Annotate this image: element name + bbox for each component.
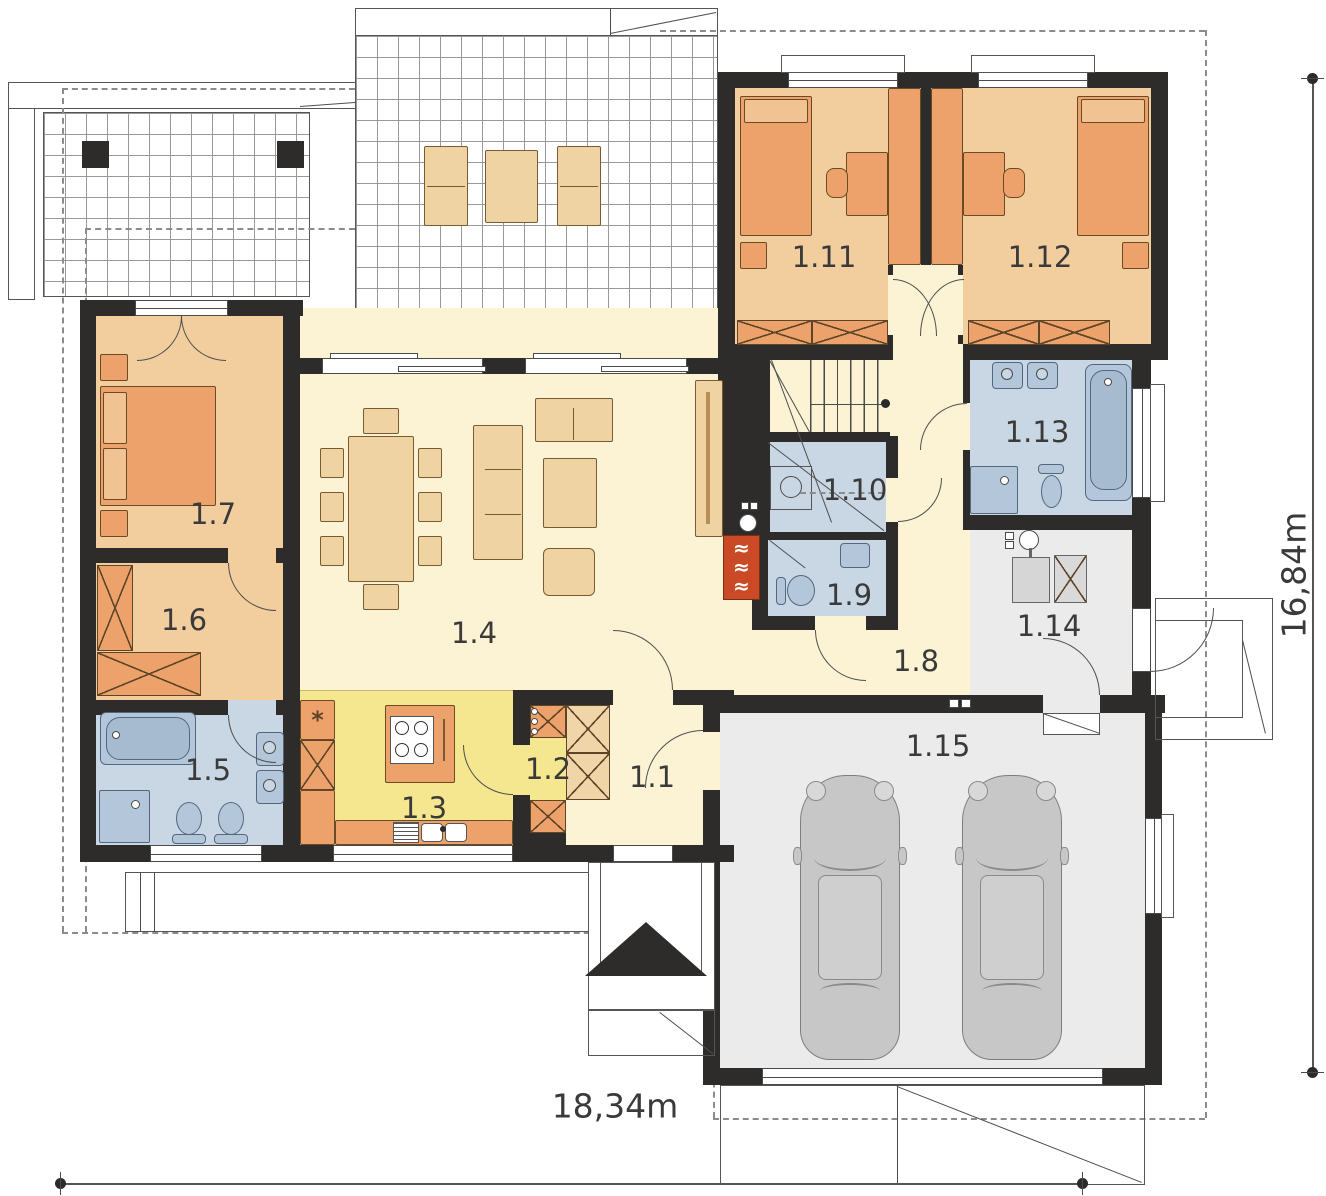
terrace-pillar: [82, 141, 109, 168]
sink-basin: [1001, 368, 1013, 380]
window-bathroom-1-13: [1132, 388, 1151, 498]
water-tank-icon: [1054, 555, 1087, 603]
kitchen-cabinet-icon: [300, 740, 335, 790]
shelf-peg: [531, 708, 538, 715]
stair-rail: [810, 404, 890, 405]
chair-icon: [320, 448, 344, 478]
step-line: [154, 872, 155, 932]
car-headlight: [1036, 781, 1056, 801]
roof-eave-band: [8, 108, 35, 300]
window-bathroom-1-5: [150, 845, 262, 862]
toilet-icon: [176, 802, 202, 835]
door-opening: [703, 732, 720, 790]
room-label-1-11: 1.11: [792, 240, 857, 274]
shelf-peg: [531, 728, 538, 735]
window-french-door-1-7: [135, 300, 228, 316]
closet-icon: [888, 88, 921, 265]
flue-vent: [750, 502, 758, 510]
room-label-1-12: 1.12: [1008, 240, 1073, 274]
wall: [921, 72, 931, 265]
armchair-icon: [543, 548, 595, 596]
overhang-dashed: [1205, 30, 1207, 1118]
wardrobe-icon: [97, 652, 201, 696]
wall: [963, 450, 970, 515]
nightstand-icon: [100, 354, 128, 381]
burner: [414, 743, 428, 757]
door-opening: [228, 700, 276, 715]
car-roof: [818, 875, 882, 980]
wardrobe-icon: [1039, 320, 1110, 345]
sliding-panel: [330, 353, 418, 359]
stairs: [810, 360, 890, 432]
wall: [866, 616, 898, 630]
entrance-door: [613, 845, 673, 862]
chair-icon: [320, 492, 344, 522]
side-door-1-14: [1132, 608, 1151, 672]
bidet-tank: [214, 834, 248, 844]
vent: [961, 699, 971, 708]
closet-icon: [931, 88, 963, 265]
wall: [703, 695, 1043, 713]
wall: [886, 436, 898, 478]
pantry-cabinet-icon: [530, 800, 566, 833]
wardrobe-icon: [97, 565, 133, 651]
room-label-1-3: 1.3: [401, 791, 447, 825]
wall: [963, 344, 1168, 360]
room-label-1-14: 1.14: [1017, 609, 1082, 643]
overhang-dashed: [62, 932, 660, 934]
room-label-1-8: 1.8: [893, 644, 939, 678]
overhang-dashed: [62, 88, 355, 90]
room-label-1-6: 1.6: [161, 603, 207, 637]
flue-vent: [741, 502, 749, 510]
room-label-1-13: 1.13: [1005, 415, 1070, 449]
shower-drain: [1000, 476, 1009, 485]
floor-garage-1-15: [720, 713, 1145, 1068]
overhang-dashed: [62, 88, 64, 932]
wall: [703, 1068, 762, 1085]
wall: [963, 360, 970, 403]
sink-basin: [263, 779, 276, 792]
washing-machine-drum: [780, 476, 802, 498]
room-label-1-9: 1.9: [826, 578, 872, 612]
room-label-1-7: 1.7: [190, 497, 236, 531]
wall: [718, 344, 770, 436]
sink-basin: [1036, 368, 1048, 380]
car-rear-window: [982, 983, 1042, 999]
room-label-1-5: 1.5: [185, 753, 231, 787]
dimension-height-label: 16,84m: [1275, 512, 1314, 639]
wall: [718, 72, 1168, 88]
kitchen-counter: [300, 790, 335, 845]
dimension-tick: [1301, 78, 1324, 79]
sliding-panel: [601, 366, 689, 372]
nightstand-icon: [740, 242, 767, 269]
car-headlight: [806, 781, 826, 801]
nightstand-icon: [100, 510, 128, 537]
room-label-1-2: 1.2: [525, 752, 571, 786]
chair-icon: [1003, 168, 1025, 198]
car-rear-window: [820, 983, 880, 999]
door-opening: [1043, 695, 1100, 713]
shelf-peg: [531, 718, 538, 725]
chair-icon: [418, 448, 442, 478]
sofa-icon: [535, 398, 613, 442]
bed-pillow: [103, 392, 127, 444]
wall: [1151, 72, 1168, 360]
window-sill: [1161, 814, 1174, 918]
sofa-icon: [473, 425, 523, 560]
garage-door-opening: [762, 1068, 1103, 1085]
chair-icon: [363, 584, 399, 610]
wall: [283, 300, 300, 862]
bathtub-inner: [106, 717, 190, 760]
sofa-seam: [427, 186, 465, 187]
faucet: [440, 826, 446, 832]
room-label-1-1: 1.1: [629, 760, 675, 794]
outdoor-table-icon: [485, 150, 538, 223]
hall-wardrobe-icon: [566, 705, 610, 753]
chair-icon: [418, 536, 442, 566]
window-sill: [781, 55, 905, 73]
door-opening: [815, 616, 866, 630]
kitchen-sink-icon: [445, 823, 467, 842]
overhang-dashed: [660, 30, 1205, 32]
car-mirror: [955, 847, 964, 865]
boiler-icon: [1012, 557, 1050, 603]
overhang-dashed: [85, 228, 355, 230]
island-board: [443, 719, 445, 761]
chair-icon: [320, 536, 344, 566]
door-opening: [228, 548, 276, 563]
burner: [395, 721, 409, 735]
flue-vent: [1005, 541, 1014, 549]
toilet-tank: [1038, 464, 1064, 474]
dimension-tick: [1301, 1072, 1324, 1073]
bed-pillow: [103, 448, 127, 500]
wardrobe-icon: [737, 320, 812, 345]
vent: [949, 699, 959, 708]
wall: [752, 532, 886, 540]
side-steps-inner: [1155, 620, 1243, 718]
car-headlight: [968, 781, 988, 801]
burner: [395, 743, 409, 757]
sofa-seam: [573, 408, 574, 440]
chair-icon: [418, 492, 442, 522]
chimney-icon: [1019, 530, 1039, 550]
sofa-seam: [485, 469, 521, 470]
south-terrace-platform: [125, 872, 660, 932]
desk-icon: [963, 152, 1005, 216]
wall: [1145, 914, 1162, 1085]
sofa-seam: [485, 514, 521, 515]
wall: [718, 72, 735, 362]
wall: [963, 515, 1151, 530]
dining-table-icon: [348, 436, 414, 582]
door-opening: [613, 690, 673, 705]
fridge-cabinet: *: [300, 700, 335, 740]
wall: [276, 700, 283, 715]
hall-wardrobe-icon: [566, 753, 610, 800]
bed-pillow: [1081, 99, 1145, 123]
window-bedroom-1-11: [788, 72, 898, 88]
porch-step: [588, 1010, 715, 1056]
cabinet-groove: [706, 392, 710, 524]
room-label-1-10: 1.10: [823, 473, 888, 507]
shower-icon: [970, 466, 1018, 514]
wall: [513, 690, 530, 745]
wall: [513, 795, 530, 845]
toilet-icon: [787, 575, 815, 606]
dimension-tick: [1082, 1172, 1083, 1195]
bidet-icon: [218, 802, 244, 835]
kitchen-sink-icon: [421, 823, 443, 842]
room-label-1-15: 1.15: [906, 729, 971, 763]
driveway-line: [897, 1085, 898, 1185]
dimension-width-label: 18,34m: [552, 1087, 679, 1126]
sink-icon: [840, 543, 870, 568]
car-mirror: [793, 847, 802, 865]
floor-plan: ≈≈≈: [0, 0, 1326, 1196]
window-sill: [1150, 384, 1165, 502]
wall: [96, 548, 228, 563]
dimension-tick: [60, 1172, 61, 1195]
car-windshield: [814, 845, 886, 871]
car-headlight: [874, 781, 894, 801]
wall: [1132, 498, 1151, 608]
fireplace-icon: ≈≈≈: [723, 535, 760, 600]
stair-rail-post: [881, 399, 890, 408]
sink-drainer: [393, 822, 419, 843]
room-label-1-4: 1.4: [451, 616, 497, 650]
step-line: [140, 872, 141, 932]
toilet-icon: [1041, 475, 1062, 508]
window-bedroom-1-12: [978, 72, 1088, 88]
nightstand-icon: [1122, 242, 1149, 269]
toilet-tank: [776, 577, 786, 605]
chair-icon: [363, 408, 399, 434]
wall: [80, 300, 96, 862]
bathtub-drain: [112, 731, 120, 739]
wall: [768, 432, 890, 442]
terrace-left: [43, 112, 310, 297]
wall: [886, 522, 898, 616]
shower-drain: [131, 800, 140, 809]
bathtub-inner: [1090, 370, 1127, 490]
window-garage: [1145, 818, 1162, 914]
wall: [1132, 360, 1151, 388]
sliding-panel: [533, 353, 621, 359]
bathtub-drain: [1104, 378, 1112, 386]
window-kitchen: [333, 845, 513, 862]
chimney-icon: [739, 514, 757, 532]
wardrobe-icon: [968, 320, 1039, 345]
car-mirror: [1060, 847, 1069, 865]
chair-icon: [826, 168, 848, 198]
flue-vent: [1005, 532, 1014, 540]
sofa-seam: [560, 186, 598, 187]
bed-pillow: [744, 99, 808, 123]
wall: [752, 616, 815, 630]
burner: [414, 721, 428, 735]
shower-icon: [99, 790, 150, 843]
car-mirror: [898, 847, 907, 865]
window-sill: [971, 55, 1095, 73]
wall: [1103, 1068, 1162, 1085]
wall: [530, 833, 566, 845]
porch-canopy-icon: [585, 922, 707, 976]
dimension-line-width: [60, 1183, 1082, 1185]
desk-icon: [846, 152, 888, 216]
wall: [276, 548, 283, 563]
coffee-table-icon: [543, 458, 597, 528]
toilet-tank: [172, 834, 206, 844]
car-windshield: [976, 845, 1048, 871]
door-opening: [886, 478, 898, 522]
sliding-panel: [398, 366, 486, 372]
wardrobe-icon: [812, 320, 888, 345]
terrace-pillar: [277, 141, 304, 168]
car-roof: [980, 875, 1044, 980]
